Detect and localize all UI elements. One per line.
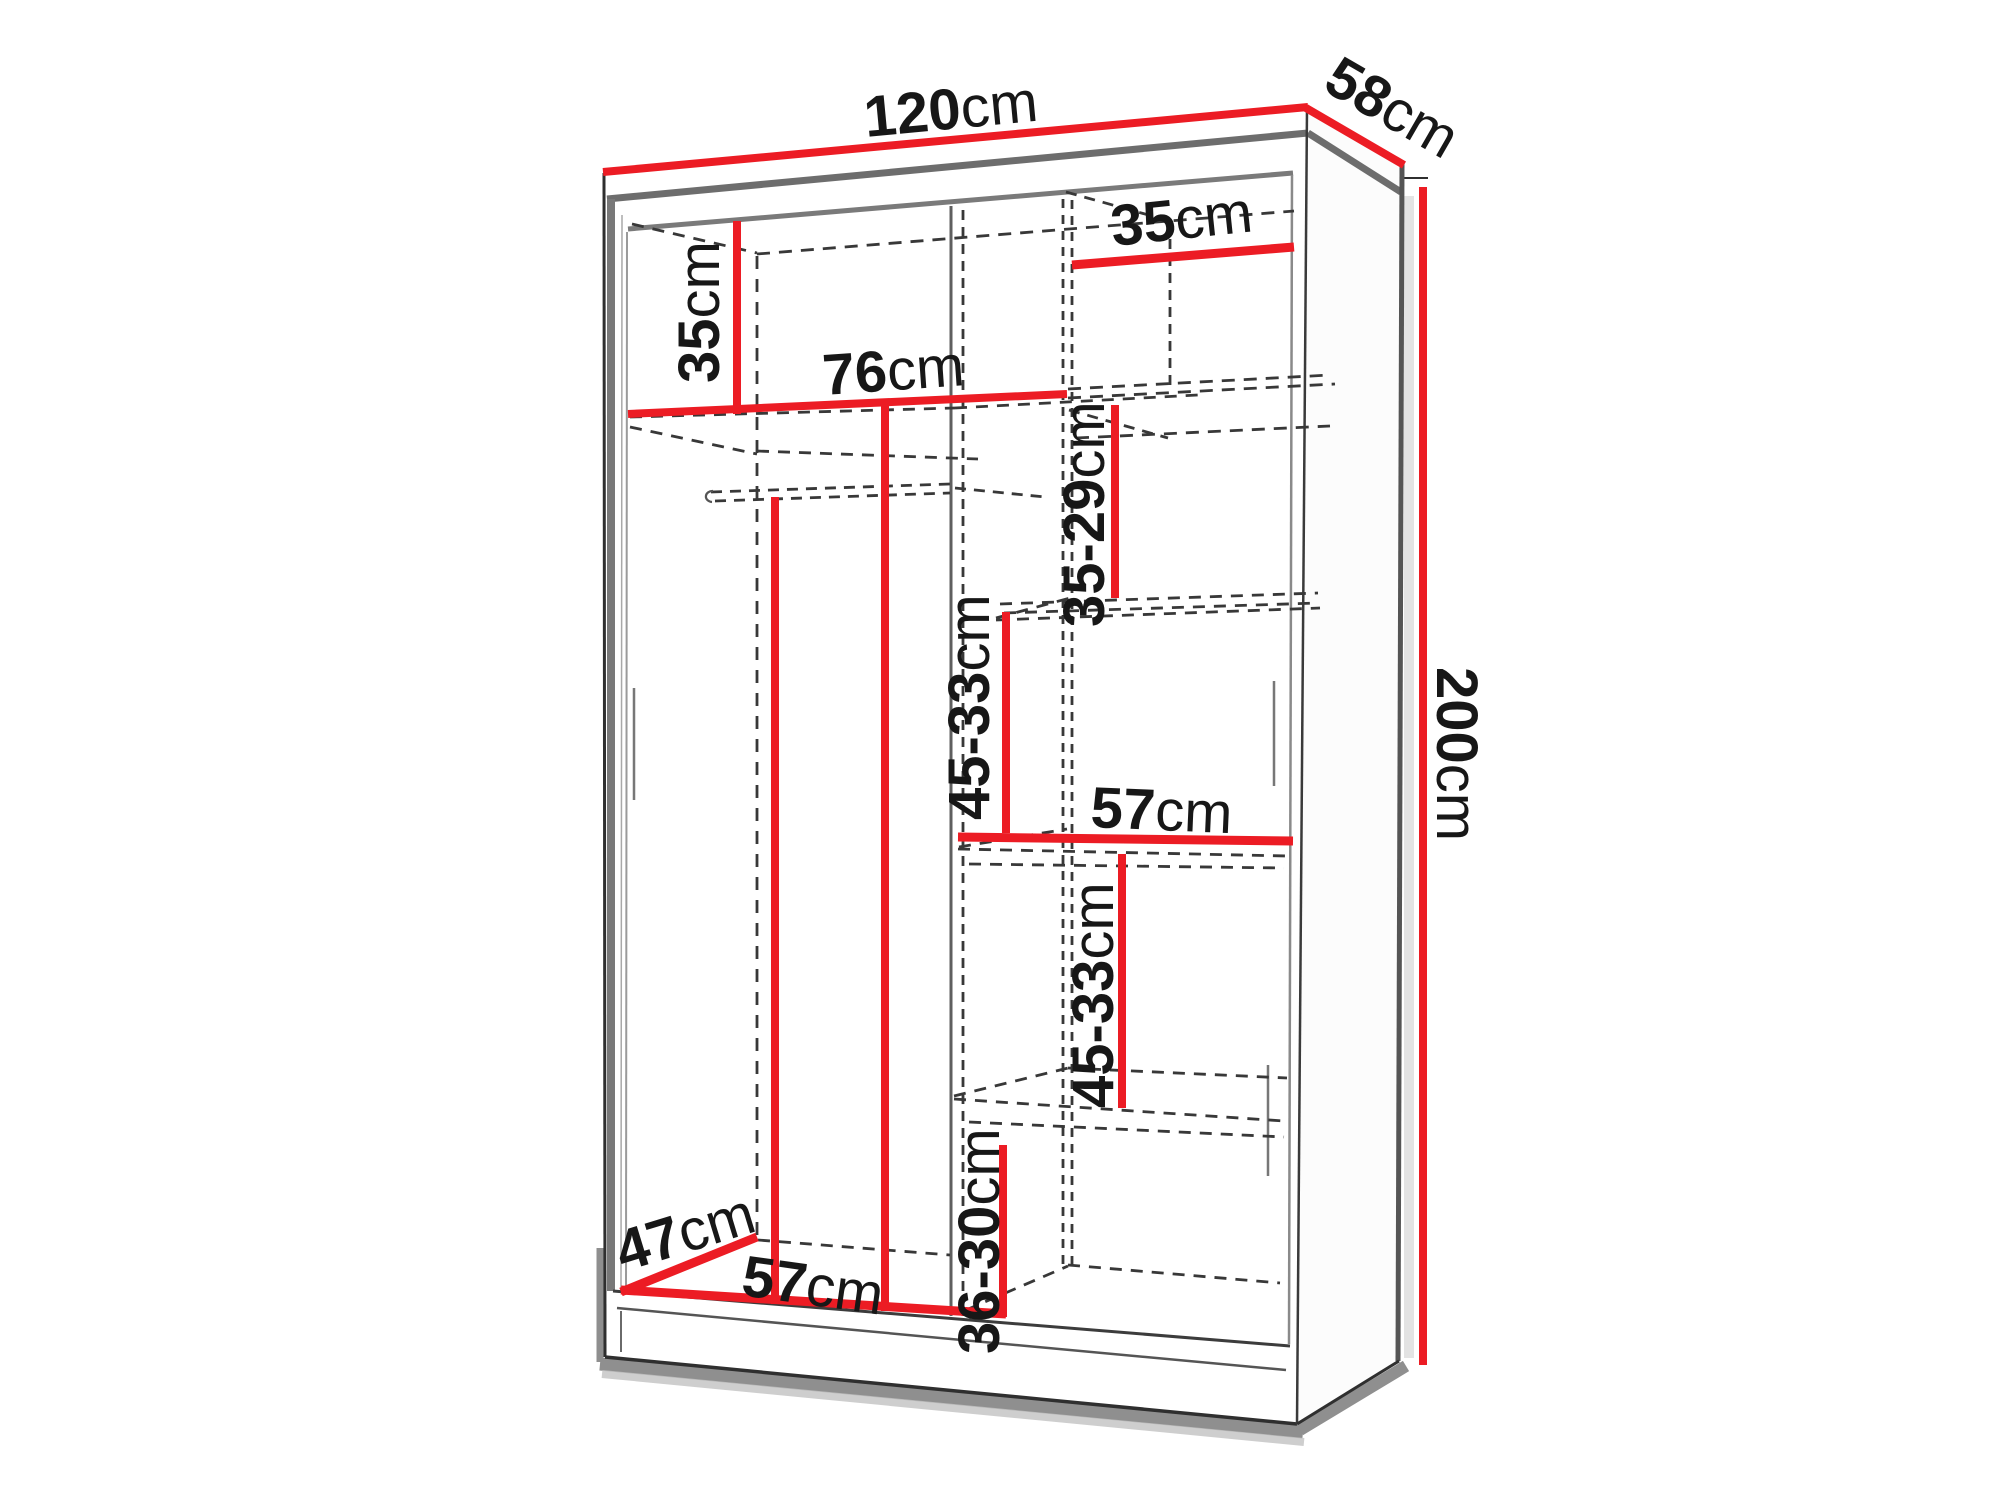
svg-text:45-33cm: 45-33cm (1061, 882, 1126, 1108)
svg-text:35cm: 35cm (667, 241, 732, 383)
svg-text:36-30cm: 36-30cm (947, 1128, 1012, 1354)
svg-text:35-29cm: 35-29cm (1052, 401, 1117, 627)
svg-text:200cm: 200cm (1424, 667, 1489, 841)
svg-text:57cm: 57cm (1089, 775, 1234, 846)
svg-text:76cm: 76cm (820, 333, 966, 408)
svg-text:45-33cm: 45-33cm (937, 594, 1002, 820)
